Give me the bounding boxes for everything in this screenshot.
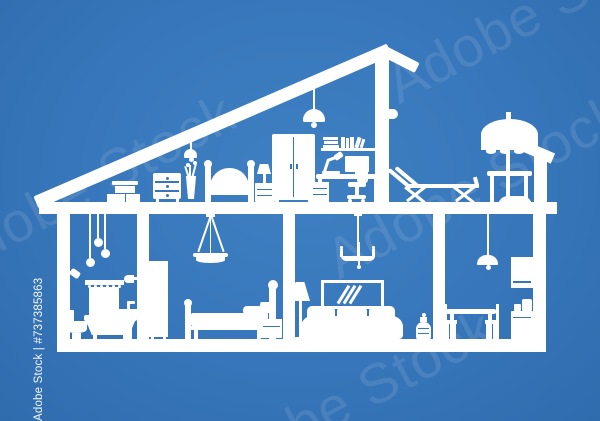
wardrobe-leg (275, 200, 279, 203)
bed-knob (184, 299, 192, 307)
bed-headboard-arch (210, 168, 249, 192)
jar-tall (522, 299, 532, 311)
fridge-door-line (513, 317, 531, 318)
pendant-bulb (486, 265, 491, 270)
pendant-bulb (311, 122, 317, 128)
drawer-line (313, 194, 327, 195)
chandelier-candle (357, 242, 360, 248)
vase-stripe (418, 333, 429, 334)
pendant-ball (94, 238, 103, 247)
parasol-scallop (514, 149, 524, 154)
book-shelf (321, 148, 379, 151)
table-lamp-stem (265, 313, 268, 320)
parasol-scallop (486, 149, 496, 154)
chair-leg (493, 324, 496, 341)
desk-top (316, 174, 381, 179)
chest-leg (176, 199, 179, 203)
chair-leg (486, 324, 489, 341)
lounger-seat (407, 184, 479, 188)
bed-post (248, 165, 254, 202)
parasol-table-leg (490, 176, 494, 204)
pendant-cord (89, 214, 90, 258)
shower-head (69, 268, 81, 279)
chair-leg (446, 324, 449, 341)
office-chair-wheel (361, 199, 365, 203)
watermark-vertical-label: Adobe Stock | #737385863 (33, 278, 45, 421)
office-chair-back (357, 168, 368, 183)
stock-image-preview: Adobe Stock Adobe Stock Adobe Stock Adob… (0, 0, 600, 421)
tall-cabinet (149, 261, 168, 337)
storage-box-lid (112, 181, 138, 185)
wardrobe-handle (296, 164, 298, 169)
sink-tap-spout (127, 301, 135, 304)
pendant-ball (86, 258, 95, 267)
toilet-bowl (66, 324, 87, 333)
bed-rail (191, 326, 267, 330)
mid-floor-slab (39, 202, 557, 214)
decorative-vase-body (416, 322, 431, 340)
chandelier-drop-ball (357, 265, 361, 269)
cabinet-leg (151, 337, 154, 340)
wardrobe-handle (290, 164, 292, 169)
storage-box-right (126, 194, 140, 202)
wall-cabinet (511, 257, 533, 288)
terrace-end-wall (534, 152, 547, 206)
chandelier-flame (340, 246, 343, 249)
storage-box-left (107, 194, 125, 202)
office-chair-base (347, 195, 366, 199)
cabinet-leg (163, 337, 166, 340)
pendant-cord (487, 214, 489, 255)
bedside-lamp-shade (257, 164, 271, 174)
decorative-vase-neck (420, 317, 427, 322)
book-flat (324, 141, 338, 144)
sink-pedestal (123, 319, 132, 339)
wall-bath-bedroom (137, 214, 149, 339)
parasol-scallop (527, 149, 536, 154)
drawer-line (263, 326, 280, 327)
drawer-handle (166, 177, 169, 180)
bed-rail (205, 190, 254, 195)
desk-drawer-unit (311, 182, 329, 202)
chair-leg (453, 324, 456, 341)
desk-leg (374, 179, 378, 202)
bed-knob (268, 280, 278, 290)
chest-leg (156, 199, 159, 203)
sofa-body (301, 316, 403, 339)
brush (191, 164, 197, 178)
desk-lamp-head (333, 151, 344, 161)
pendant-cord (97, 214, 98, 238)
drawer-line (257, 189, 273, 190)
bed-leg (194, 330, 198, 340)
parasol-base (498, 196, 532, 206)
brush-tip (186, 163, 190, 167)
pendant-cord (104, 214, 105, 249)
drawer-line (313, 188, 327, 189)
bed-knob (204, 160, 212, 168)
pendant-bulb (189, 157, 194, 162)
bedroom-nightstand (261, 319, 282, 338)
cone-pendant-bowl (196, 257, 225, 263)
decorative-vase-knob (422, 313, 426, 317)
book-leaning (360, 139, 366, 148)
book-upright (341, 137, 345, 148)
large-pendant-shade (303, 109, 325, 122)
office-chair-wheel (348, 199, 352, 203)
chandelier-canopy (354, 213, 362, 216)
watermark-tile: Adobe Stock (0, 0, 135, 46)
sofa-leg (309, 338, 315, 342)
pendant-ball (101, 249, 110, 258)
bed-knob (247, 160, 255, 168)
wall-sconce (388, 109, 398, 119)
cabinet-shelf-line (513, 281, 531, 283)
right-wall (533, 206, 546, 352)
toilet-base (72, 333, 81, 340)
drawer-line (257, 195, 273, 196)
jar-small (514, 304, 521, 311)
wardrobe-door-split (293, 137, 295, 197)
drawer-handle (166, 185, 169, 188)
kitchen-pendant-shade (477, 255, 498, 265)
bedside-lamp-stem (263, 174, 266, 183)
book-upright (350, 137, 354, 148)
book-upright (346, 138, 350, 148)
sink-basin (116, 309, 141, 319)
parasol-canopy (481, 119, 538, 150)
pendant-cord (210, 215, 224, 252)
pendant-cord (313, 86, 315, 110)
fridge (511, 311, 533, 340)
pendant-cord (210, 215, 212, 255)
drawer-line (155, 181, 179, 183)
sofa-leg (388, 338, 394, 342)
drawer-handle (166, 194, 169, 197)
chandelier-candle (372, 249, 375, 257)
shower-curtain (89, 287, 119, 316)
wall-lamp-stem (133, 277, 137, 280)
book-flat (323, 145, 339, 148)
sink-tap (127, 303, 130, 310)
vase-with-brushes (185, 176, 197, 199)
vase-stripe (418, 328, 429, 329)
drawer-line (155, 190, 179, 192)
book-flat (323, 137, 338, 140)
shower-curtain-rod (85, 280, 124, 285)
chandelier-candle (340, 249, 343, 257)
storage-box-top (115, 186, 135, 193)
bathtub-foot (93, 335, 97, 340)
brush-tip (193, 161, 197, 165)
chandelier-flame (372, 246, 375, 249)
wall-bedroom-living (283, 214, 295, 339)
